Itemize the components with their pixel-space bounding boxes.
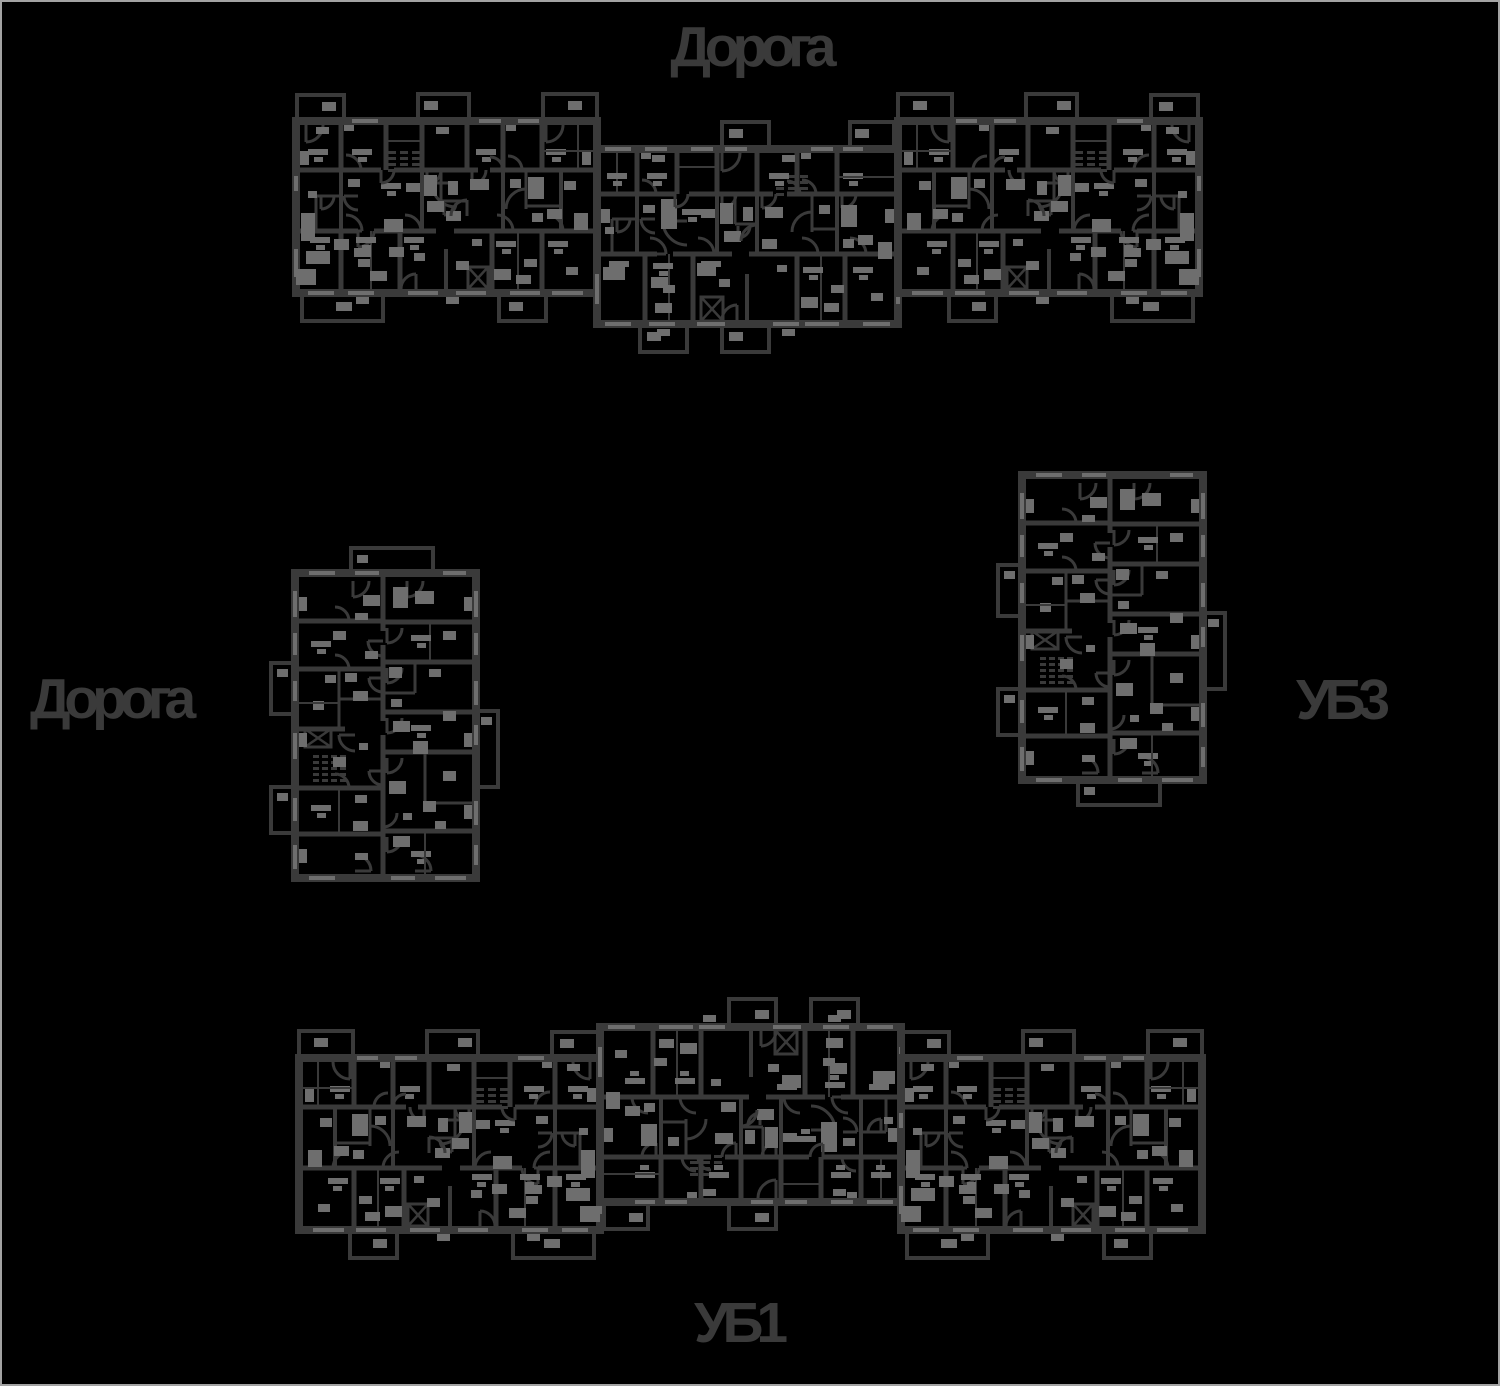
svg-text:Дорога: Дорога bbox=[30, 667, 197, 731]
svg-text:УБ3: УБ3 bbox=[1296, 668, 1388, 732]
svg-text:УБ1: УБ1 bbox=[694, 1291, 787, 1355]
svg-text:Дорога: Дорога bbox=[670, 15, 837, 79]
